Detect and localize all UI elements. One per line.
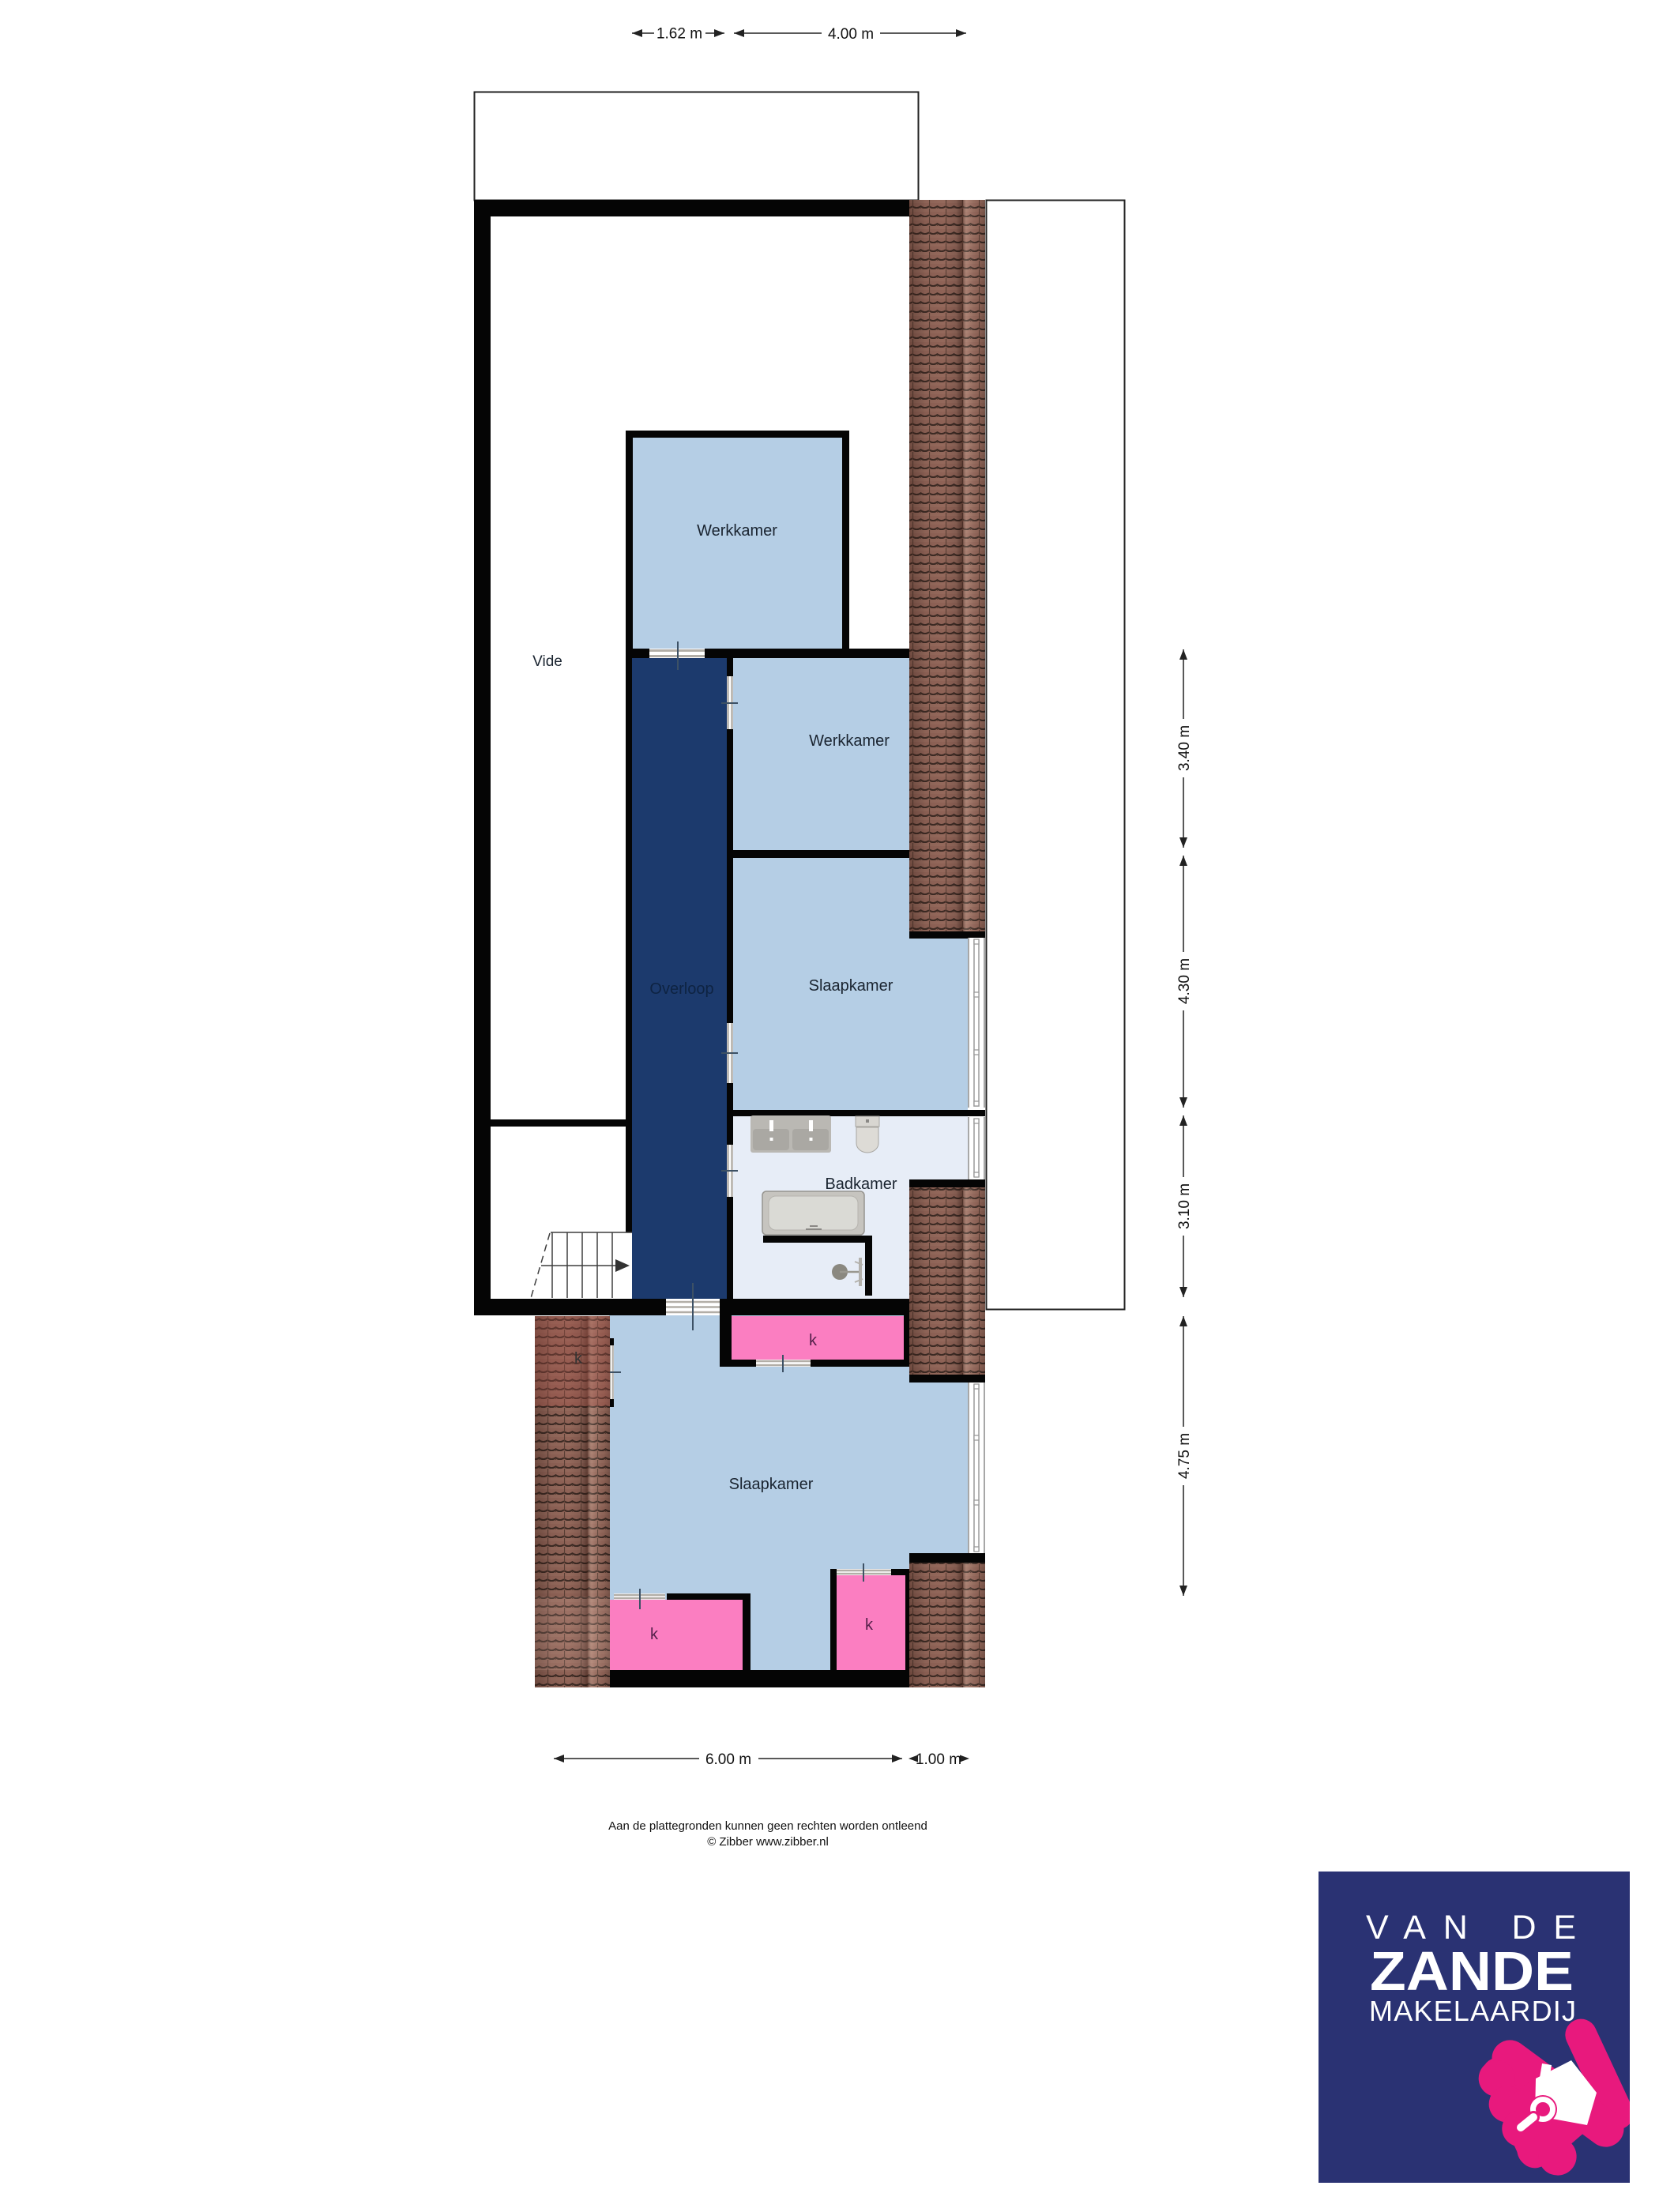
svg-text:Badkamer: Badkamer <box>825 1176 897 1193</box>
svg-text:MAKELAARDIJ: MAKELAARDIJ <box>1369 1995 1576 2027</box>
svg-text:ZANDE: ZANDE <box>1370 1940 1574 2002</box>
svg-text:k: k <box>650 1626 659 1643</box>
svg-text:6.00 m: 6.00 m <box>705 1751 751 1768</box>
svg-text:Slaapkamer: Slaapkamer <box>729 1476 814 1493</box>
svg-text:3.40 m: 3.40 m <box>1176 725 1193 771</box>
svg-text:k: k <box>809 1332 818 1349</box>
svg-text:1.00 m: 1.00 m <box>916 1751 961 1768</box>
svg-text:4.30 m: 4.30 m <box>1176 958 1193 1004</box>
svg-text:1.62 m: 1.62 m <box>656 26 702 43</box>
svg-text:4.75 m: 4.75 m <box>1176 1433 1193 1479</box>
svg-text:Werkkamer: Werkkamer <box>809 732 890 750</box>
svg-text:3.10 m: 3.10 m <box>1176 1183 1193 1229</box>
svg-text:4.00 m: 4.00 m <box>828 26 874 43</box>
svg-text:Vide: Vide <box>532 653 562 670</box>
svg-text:k: k <box>574 1350 583 1367</box>
svg-text:© Zibber www.zibber.nl: © Zibber www.zibber.nl <box>707 1835 829 1849</box>
svg-text:Aan de plattegronden kunnen ge: Aan de plattegronden kunnen geen rechten… <box>608 1819 927 1833</box>
svg-text:Overloop: Overloop <box>649 980 713 998</box>
svg-text:Werkkamer: Werkkamer <box>697 522 777 540</box>
svg-text:Slaapkamer: Slaapkamer <box>809 977 893 995</box>
svg-text:k: k <box>865 1616 874 1634</box>
